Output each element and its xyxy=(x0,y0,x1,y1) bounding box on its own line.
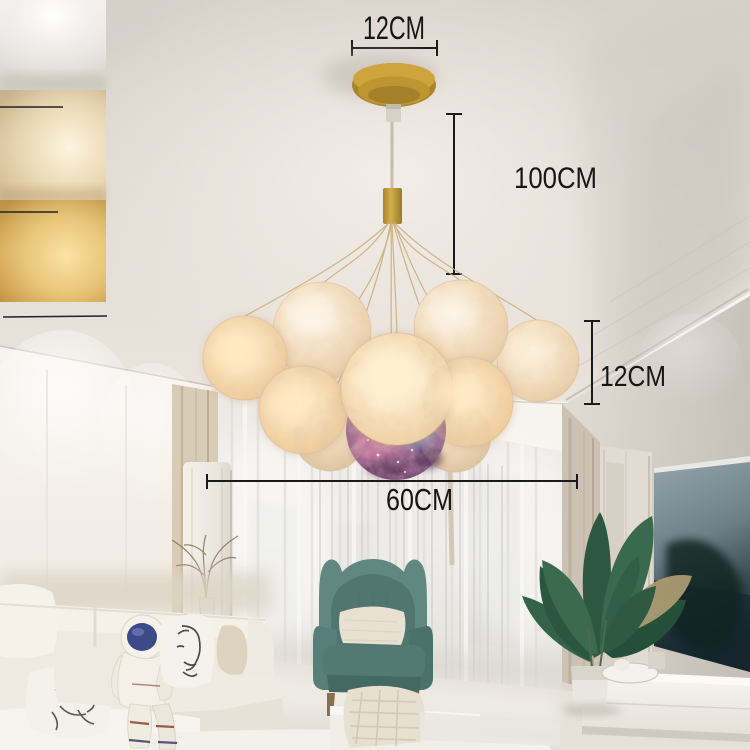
svg-text:12CM: 12CM xyxy=(363,10,425,46)
svg-text:100CM: 100CM xyxy=(514,162,597,195)
svg-text:60CM: 60CM xyxy=(386,482,453,517)
svg-text:12CM: 12CM xyxy=(600,361,666,393)
